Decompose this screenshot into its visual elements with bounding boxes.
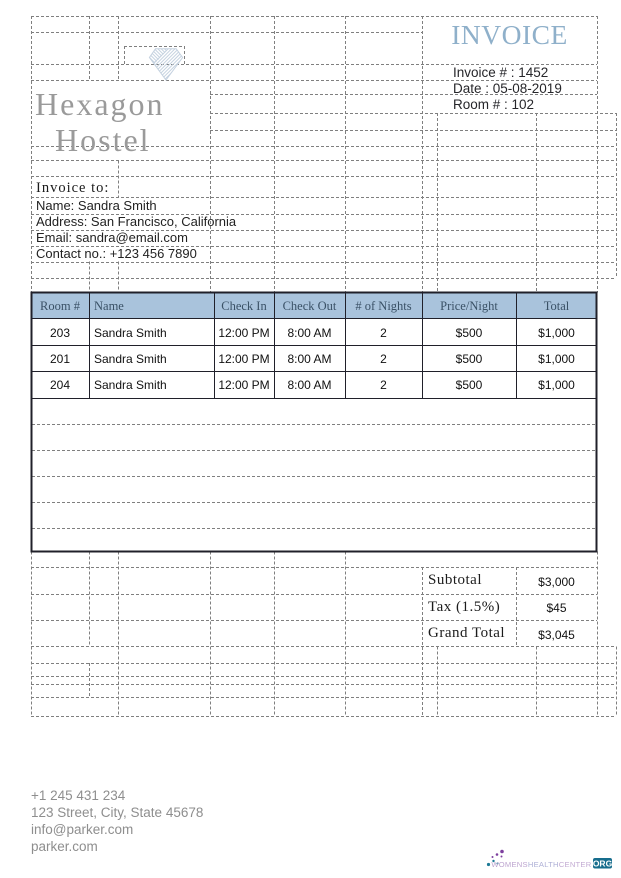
svg-text:ORG: ORG — [593, 859, 613, 869]
svg-text:WOMENSHEALTHCENTER: WOMENSHEALTHCENTER — [491, 860, 591, 869]
